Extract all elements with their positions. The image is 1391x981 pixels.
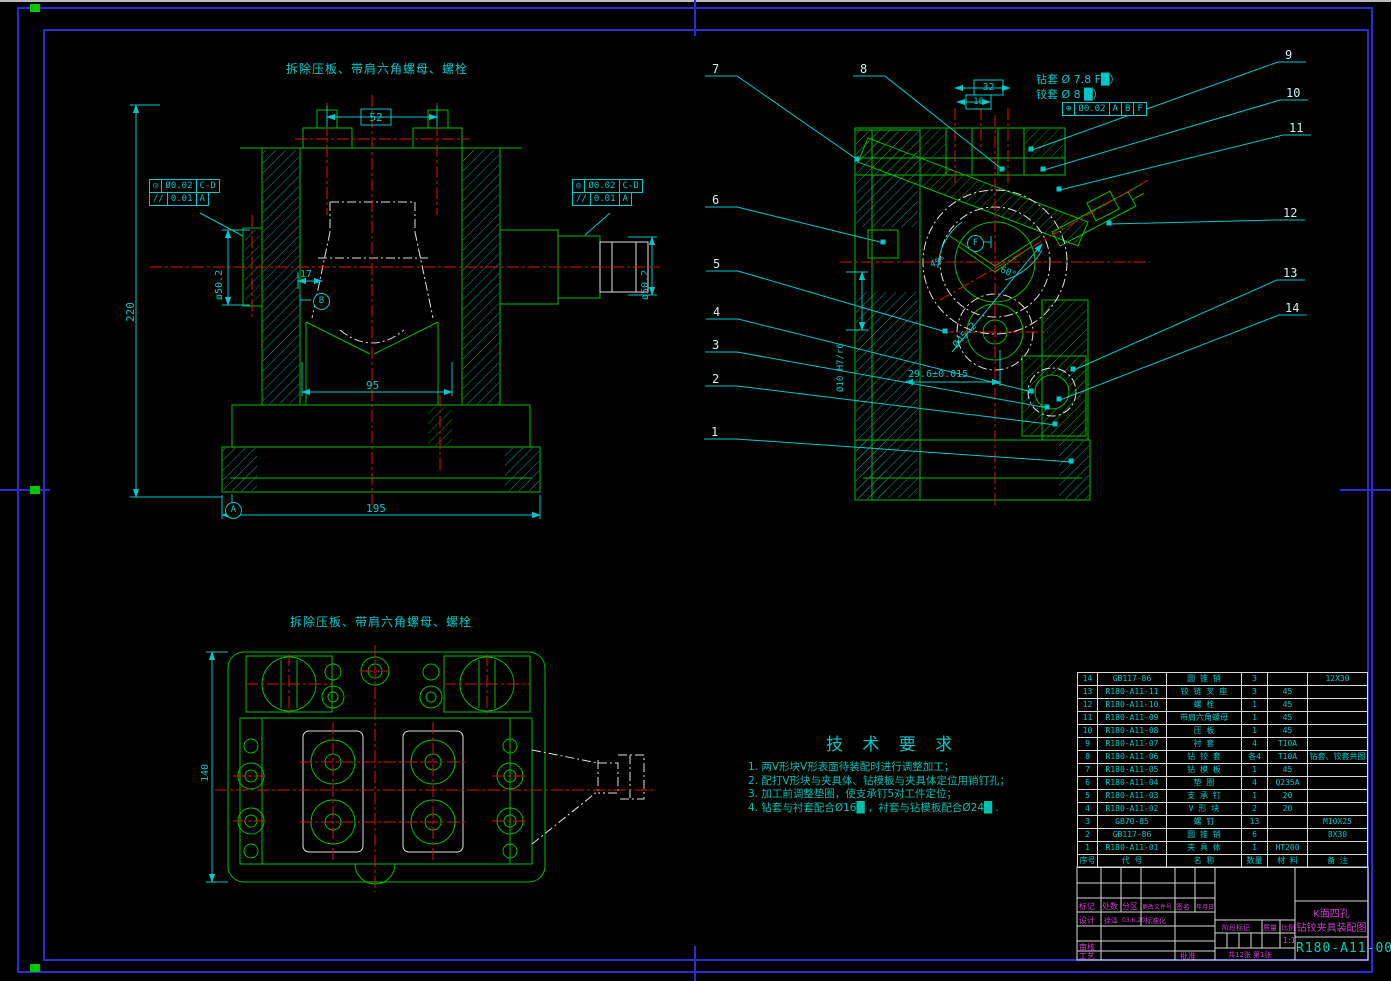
dim-140: 140 [200, 764, 211, 782]
bom-row: 13R180-A11-11铰 链 叉 座345 [1078, 686, 1368, 699]
ream-bushing-note: 铰套 Ø 8 █） [1036, 86, 1104, 102]
tech-req-title: 技 术 要 求 [826, 730, 1048, 755]
fcf-symbol: // [149, 192, 168, 206]
bom-row: 10R180-A11-08压 板145 [1078, 725, 1368, 738]
bom-cell: 6 [1078, 777, 1098, 790]
bom-header-cell: 序号 [1078, 855, 1098, 868]
drawing-title-line1: K面四孔 [1295, 905, 1368, 920]
rev-header-count: 处数 [1102, 901, 1118, 912]
bom-cell [1308, 803, 1368, 816]
bom-row: 3GB70-85螺 钉13M10X25 [1078, 816, 1368, 829]
rev-header-fileno: 更改文件号 [1142, 902, 1172, 911]
bom-cell: R180-A11-03 [1098, 790, 1167, 803]
bom-cell: 支 承 钉 [1167, 790, 1242, 803]
bom-cell: 8X30 [1308, 829, 1368, 842]
dia-50-left: ø50.2 [214, 270, 225, 300]
bom-cell: 4 [1242, 777, 1268, 790]
bom-header-cell: 数量 [1242, 855, 1268, 868]
bom-cell: 3 [1242, 686, 1268, 699]
bom-cell: 1 [1242, 725, 1268, 738]
rev-header-date: 年月日 [1196, 902, 1214, 911]
balloon-14: 14 [1285, 301, 1299, 315]
scale-label: 比例 [1281, 923, 1295, 933]
bom-cell: 1 [1242, 699, 1268, 712]
bom-cell: R180-A11-04 [1098, 777, 1167, 790]
bom-cell: 20 [1268, 803, 1308, 816]
bom-cell: 8 [1078, 751, 1098, 764]
weight-label: 质量 [1263, 923, 1277, 933]
balloon-1: 1 [711, 425, 718, 439]
bom-cell [1308, 725, 1368, 738]
bom-row: 14GB117-86圆 锥 销312X30 [1078, 673, 1368, 686]
bom-cell: 3 [1078, 816, 1098, 829]
balloon-leaders [704, 62, 1311, 463]
drill-bushing-note: 钻套 Ø 7.8 F█） [1036, 71, 1120, 87]
bom-cell: T10A [1268, 751, 1308, 764]
bom-cell [1268, 829, 1308, 842]
bom-cell: 1 [1242, 764, 1268, 777]
bom-cell: R180-A11-09 [1098, 712, 1167, 725]
bom-cell: 铰 链 叉 座 [1167, 686, 1242, 699]
bom-row: 4R180-A11-02V 形 块220 [1078, 803, 1368, 816]
bom-cell: 45 [1268, 764, 1308, 777]
bom-cell: 12X30 [1308, 673, 1368, 686]
designer-name: 徐泽 [1104, 916, 1118, 926]
bom-cell: R180-A11-07 [1098, 738, 1167, 751]
bom-cell: 45 [1268, 686, 1308, 699]
bom-cell: 14 [1078, 673, 1098, 686]
datum-a: A [225, 502, 242, 519]
bom-row: 8R180-A11-06钻 铰 套各4T10A钻套、铰套共图 [1078, 751, 1368, 764]
tech-req-item: 4. 钻套与衬套配合Ø16█ ，衬套与钻模板配合Ø24█ . [748, 802, 1048, 816]
bom-cell: 6 [1242, 829, 1268, 842]
bom-cell: 各4 [1242, 751, 1268, 764]
fcf-datum-ref: C-D [619, 179, 643, 193]
approve-label: 批准 [1180, 951, 1196, 962]
bom-cell: 1 [1242, 842, 1268, 855]
scale-value: 1:1 [1283, 936, 1296, 945]
bom-cell: 1 [1078, 842, 1098, 855]
bom-header-row: 序号代 号名 称数量材 料备 注 [1078, 855, 1368, 868]
dim-17: 17 [300, 269, 312, 280]
bom-cell: M10X25 [1308, 816, 1368, 829]
dim-29-6: 29.6±0.015 [908, 369, 968, 380]
bom-row: 11R180-A11-09带肩六角螺母145 [1078, 712, 1368, 725]
bom-cell [1308, 712, 1368, 725]
bom-cell: 带肩六角螺母 [1167, 712, 1242, 725]
fcf-tolerance: 0.01 [590, 192, 620, 206]
bom-cell: 13 [1242, 816, 1268, 829]
bom-cell: 9 [1078, 738, 1098, 751]
balloon-11: 11 [1289, 121, 1303, 135]
bom-cell: 螺 栓 [1167, 699, 1242, 712]
bom-cell [1268, 816, 1308, 829]
balloon-3: 3 [712, 338, 719, 352]
fcf-tolerance: Ø0.02 [161, 179, 196, 193]
front-view-note: 拆除压板、带肩六角螺母、螺栓 [286, 60, 468, 77]
bom-cell: 11 [1078, 712, 1098, 725]
balloon-10: 10 [1286, 86, 1300, 100]
drawing-number: R180-A11-00 [1296, 941, 1391, 956]
balloon-4: 4 [713, 305, 720, 319]
bom-cell [1308, 686, 1368, 699]
bom-cell: GB70-85 [1098, 816, 1167, 829]
bom-cell: GB117-86 [1098, 829, 1167, 842]
balloon-6: 6 [712, 193, 719, 207]
fcf-symbol: ⊕ [1062, 102, 1075, 116]
datum-f: F [967, 235, 984, 252]
dim-195: 195 [366, 502, 386, 515]
bom-cell: R180-A11-01 [1098, 842, 1167, 855]
bom-cell: 衬 套 [1167, 738, 1242, 751]
bom-cell: 1 [1242, 712, 1268, 725]
fcf-datum-ref: A [196, 192, 209, 206]
bom-cell: 10 [1078, 725, 1098, 738]
bom-cell: 45 [1268, 725, 1308, 738]
rev-header-mark: 标记 [1079, 901, 1095, 912]
dia-50-right: ø50.2 [640, 270, 651, 300]
fcf-symbol: // [572, 192, 591, 206]
fcf-tolerance: 0.01 [167, 192, 197, 206]
bom-cell: R180-A11-10 [1098, 699, 1167, 712]
bom-header-cell: 代 号 [1098, 855, 1167, 868]
bom-cell [1308, 764, 1368, 777]
bom-cell: 3 [1242, 673, 1268, 686]
fcf-tolerance: Ø0.02 [1074, 102, 1109, 116]
bom-table: 14GB117-86圆 锥 销312X3013R180-A11-11铰 链 叉 … [1077, 672, 1368, 867]
bom-row: 9R180-A11-07衬 套4T10A [1078, 738, 1368, 751]
fcf-datum-ref: A [1109, 102, 1122, 116]
fcf-datum-ref: C-D [196, 179, 220, 193]
dim-32: 32 [974, 82, 1003, 93]
balloon-13: 13 [1283, 266, 1297, 280]
balloon-9: 9 [1285, 48, 1292, 62]
bom-row: 1R180-A11-01夹 具 体1HT200 [1078, 842, 1368, 855]
bom-cell: 7 [1078, 764, 1098, 777]
plan-view-note: 拆除压板、带肩六角螺母、螺栓 [290, 613, 472, 630]
bom-cell: T10A [1268, 738, 1308, 751]
bom-cell [1308, 777, 1368, 790]
bom-cell: 钻 模 板 [1167, 764, 1242, 777]
balloon-12: 12 [1283, 206, 1297, 220]
bom-cell: 夹 具 体 [1167, 842, 1242, 855]
bom-cell: 5 [1078, 790, 1098, 803]
bom-row: 12R180-A11-10螺 栓145 [1078, 699, 1368, 712]
bom-header-cell: 备 注 [1308, 855, 1368, 868]
bom-cell [1308, 790, 1368, 803]
stage-label: 阶段标记 [1222, 923, 1250, 933]
fold-marks [30, 4, 40, 972]
fcf-front-right: ◎ Ø0.02 C-D // 0.01 A [573, 180, 643, 206]
balloon-7: 7 [712, 62, 719, 76]
bom-cell: GB117-86 [1098, 673, 1167, 686]
bom-cell: 4 [1242, 738, 1268, 751]
design-date: 03.6.20 [1122, 917, 1145, 924]
standardization-label: 标准化 [1145, 916, 1166, 926]
tech-req-item: 1. 两V形块V形表面待装配时进行调整加工； [748, 761, 1048, 775]
fcf-datum-ref: A [619, 192, 632, 206]
dim-220: 220 [124, 302, 137, 322]
balloon-5: 5 [713, 257, 720, 271]
dim-52: 52 [361, 111, 391, 124]
sheet-info: 共12张 第1张 [1228, 950, 1272, 960]
bom-cell: 2 [1078, 829, 1098, 842]
dim-16: 16 [966, 97, 991, 107]
bom-cell: 12 [1078, 699, 1098, 712]
bom-row: 5R180-A11-03支 承 钉120 [1078, 790, 1368, 803]
fcf-front-left: ◎ Ø0.02 C-D // 0.01 A [150, 180, 220, 206]
bom-row: 7R180-A11-05钻 模 板145 [1078, 764, 1368, 777]
datum-b: B [313, 293, 330, 310]
technical-requirements: 技 术 要 求 1. 两V形块V形表面待装配时进行调整加工； 2. 配打V形块与… [748, 730, 1048, 815]
bom-cell: 螺 钉 [1167, 816, 1242, 829]
bom-cell: HT200 [1268, 842, 1308, 855]
side-view-drawing [840, 80, 1150, 505]
bom-cell: R180-A11-05 [1098, 764, 1167, 777]
plan-view-drawing [206, 645, 655, 892]
fcf-datum-ref: B [1121, 102, 1134, 116]
dim-95: 95 [366, 379, 379, 392]
cad-sheet: 拆除压板、带肩六角螺母、螺栓 拆除压板、带肩六角螺母、螺栓 52 17 95 1… [0, 0, 1391, 981]
bom-cell: R180-A11-06 [1098, 751, 1167, 764]
fcf-symbol: ◎ [572, 179, 585, 193]
bom-cell [1308, 699, 1368, 712]
fcf-tolerance: Ø0.02 [584, 179, 619, 193]
bom-cell: 45 [1268, 712, 1308, 725]
design-label: 设计 [1079, 915, 1095, 926]
bom-cell: V 形 块 [1167, 803, 1242, 816]
rev-header-sign: 签名 [1176, 902, 1190, 912]
bom-cell: 圆 锥 销 [1167, 829, 1242, 842]
bom-cell: R180-A11-11 [1098, 686, 1167, 699]
bom-cell: R180-A11-02 [1098, 803, 1167, 816]
bom-row: 2GB117-86圆 锥 销68X30 [1078, 829, 1368, 842]
front-view-drawing [130, 95, 660, 519]
bom-cell: 2 [1242, 803, 1268, 816]
bom-header-cell: 名 称 [1167, 855, 1242, 868]
tech-req-item: 3. 加工前调整垫圈，使支承钉5对工件定位； [748, 788, 1048, 802]
fcf-symbol: ◎ [149, 179, 162, 193]
drawing-title-line2: 钻铰夹具装配图 [1295, 919, 1368, 934]
balloon-2: 2 [712, 372, 719, 386]
fcf-position: ⊕ Ø0.02 A B F [1063, 103, 1147, 116]
pin-fit-dim: Ø10 H7/r6 [836, 343, 846, 392]
bom-header-cell: 材 料 [1268, 855, 1308, 868]
fcf-datum-ref: F [1133, 102, 1146, 116]
bom-cell [1268, 673, 1308, 686]
bom-cell: 13 [1078, 686, 1098, 699]
bom-cell: 1 [1242, 790, 1268, 803]
bom-cell: 4 [1078, 803, 1098, 816]
bom-cell: Q235A [1268, 777, 1308, 790]
bom-cell: 圆 锥 销 [1167, 673, 1242, 686]
balloon-8: 8 [860, 62, 867, 76]
bom-cell [1308, 842, 1368, 855]
bom-cell: 钻 铰 套 [1167, 751, 1242, 764]
rev-header-zone: 分区 [1122, 901, 1138, 912]
bom-cell: 20 [1268, 790, 1308, 803]
bom-row: 6R180-A11-04垫 圈4Q235A [1078, 777, 1368, 790]
bom-cell: 压 板 [1167, 725, 1242, 738]
bom-cell: 垫 圈 [1167, 777, 1242, 790]
process-label: 工艺 [1079, 951, 1095, 962]
bom-cell [1308, 738, 1368, 751]
bom-cell: 45 [1268, 699, 1308, 712]
bom-cell: R180-A11-08 [1098, 725, 1167, 738]
bom-cell: 钻套、铰套共图 [1308, 751, 1368, 764]
tech-req-item: 2. 配打V形块与夹具体、钻模板与夹具体定位用销钉孔； [748, 775, 1048, 789]
